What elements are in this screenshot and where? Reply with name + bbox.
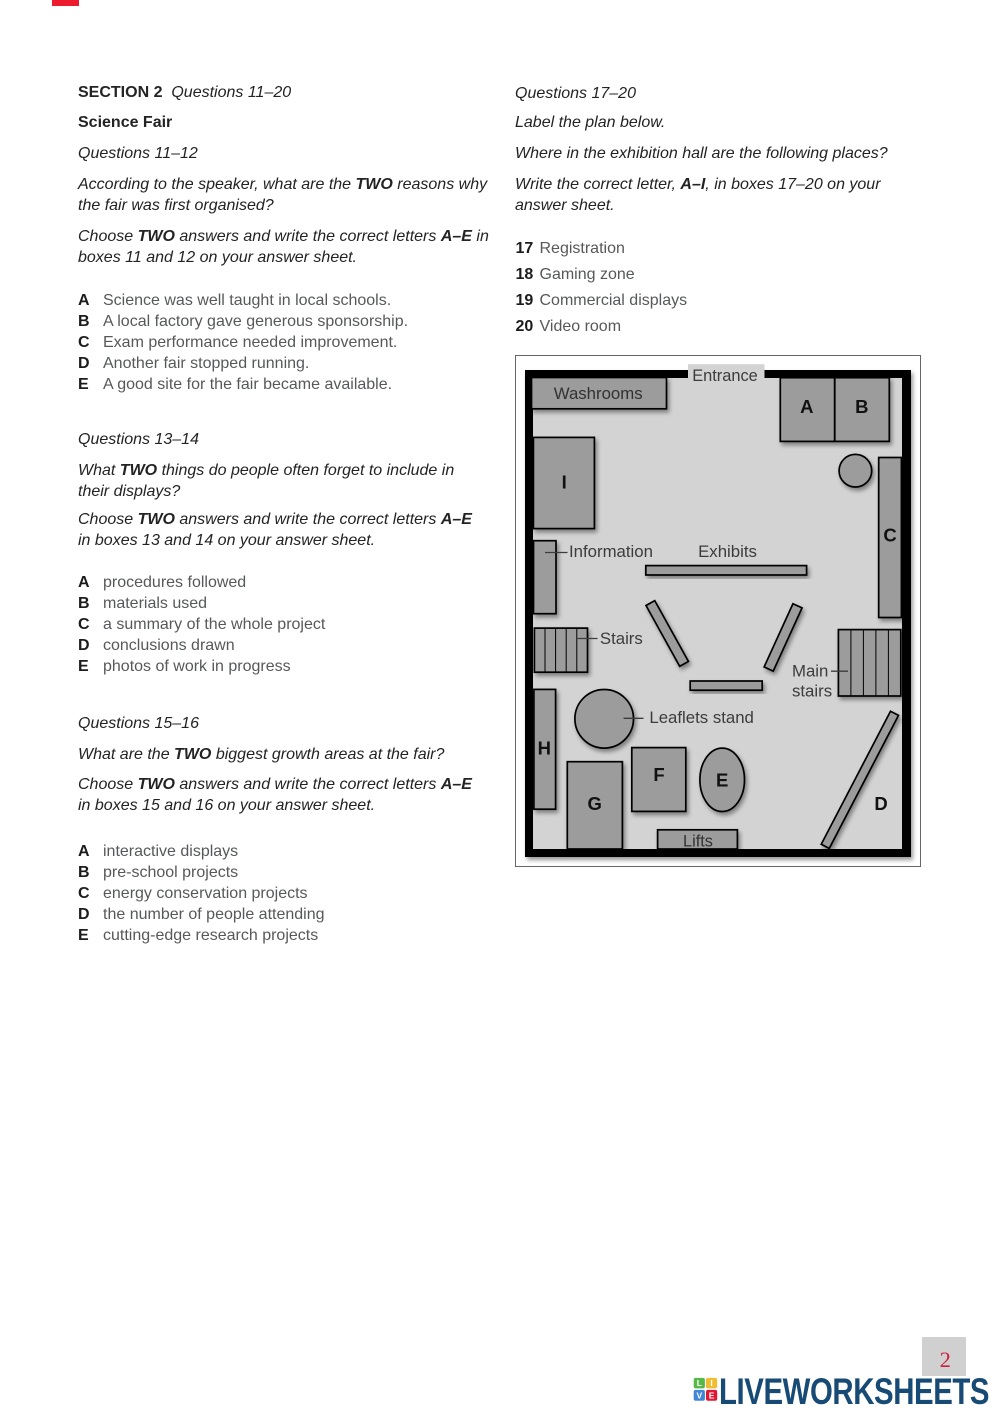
- svg-text:Leaflets stand: Leaflets stand: [649, 708, 754, 727]
- svg-text:H: H: [538, 737, 551, 758]
- svg-text:stairs: stairs: [792, 681, 832, 700]
- svg-text:V: V: [696, 1390, 702, 1400]
- svg-text:Entrance: Entrance: [692, 367, 758, 385]
- svg-text:G: G: [588, 793, 602, 814]
- svg-text:I: I: [710, 1378, 712, 1388]
- svg-text:Stairs: Stairs: [600, 629, 643, 648]
- svg-text:L: L: [697, 1378, 702, 1388]
- svg-text:Lifts: Lifts: [683, 832, 713, 850]
- svg-text:E: E: [716, 769, 728, 790]
- svg-text:Washrooms: Washrooms: [554, 384, 643, 403]
- svg-text:C: C: [883, 525, 896, 546]
- svg-text:I: I: [562, 471, 567, 492]
- svg-text:D: D: [874, 793, 887, 814]
- svg-text:E: E: [709, 1390, 715, 1400]
- svg-text:A: A: [800, 396, 813, 417]
- svg-text:Exhibits: Exhibits: [698, 542, 757, 561]
- svg-text:Main: Main: [792, 661, 828, 680]
- svg-text:F: F: [653, 764, 664, 785]
- svg-text:Information: Information: [569, 542, 653, 561]
- svg-text:B: B: [855, 396, 868, 417]
